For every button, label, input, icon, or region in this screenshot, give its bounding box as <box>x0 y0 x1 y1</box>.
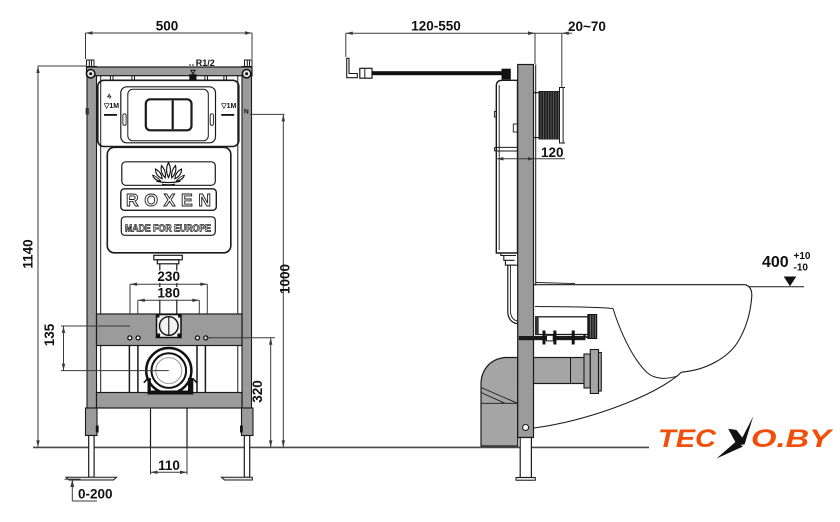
svg-text:110: 110 <box>158 458 180 473</box>
svg-text:120-550: 120-550 <box>411 19 461 34</box>
svg-text:400: 400 <box>762 254 789 271</box>
svg-text:MADE FOR EUROPE: MADE FOR EUROPE <box>125 224 211 235</box>
svg-text:O.BY: O.BY <box>751 425 834 453</box>
svg-text:500: 500 <box>156 19 179 34</box>
svg-text:320: 320 <box>250 380 265 403</box>
svg-text:20~70: 20~70 <box>568 19 606 34</box>
svg-text:1140: 1140 <box>21 239 36 268</box>
svg-text:R1/2: R1/2 <box>196 58 215 68</box>
svg-text:N: N <box>244 109 249 116</box>
svg-text:135: 135 <box>42 323 57 346</box>
svg-text:TEC: TEC <box>658 425 717 453</box>
svg-text:▽1M: ▽1M <box>103 103 119 110</box>
svg-text:180: 180 <box>157 286 180 301</box>
svg-text:230: 230 <box>157 269 180 284</box>
svg-text:1000: 1000 <box>278 264 293 294</box>
svg-text:▽1M: ▽1M <box>220 103 236 110</box>
svg-text:+10: +10 <box>794 251 811 262</box>
svg-text:-10: -10 <box>794 262 809 273</box>
svg-text:120: 120 <box>541 145 564 160</box>
svg-text:0-200: 0-200 <box>78 487 113 502</box>
